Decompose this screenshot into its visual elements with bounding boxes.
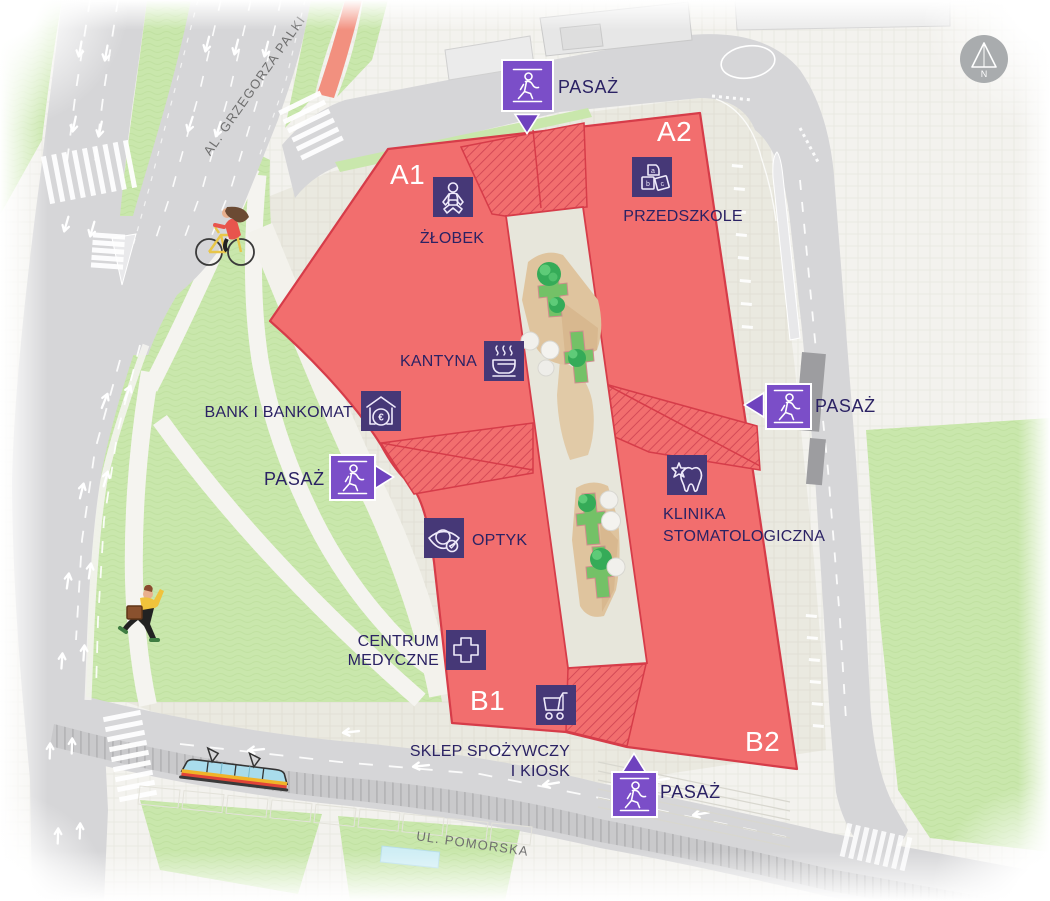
svg-text:CENTRUM: CENTRUM (358, 633, 439, 650)
svg-text:KANTYNA: KANTYNA (400, 353, 477, 370)
svg-text:SKLEP SPOŻYWCZY: SKLEP SPOŻYWCZY (410, 741, 570, 760)
svg-text:PASAŻ: PASAŻ (815, 396, 876, 416)
svg-text:PASAŻ: PASAŻ (558, 77, 619, 97)
svg-text:b: b (646, 181, 650, 188)
svg-text:OPTYK: OPTYK (472, 532, 527, 549)
svg-text:B2: B2 (745, 726, 780, 757)
svg-text:a: a (651, 168, 655, 175)
svg-text:ŻŁOBEK: ŻŁOBEK (420, 228, 484, 247)
svg-text:BANK I BANKOMAT: BANK I BANKOMAT (204, 404, 353, 421)
svg-text:MEDYCZNE: MEDYCZNE (348, 652, 439, 669)
svg-text:PRZEDSZKOLE: PRZEDSZKOLE (623, 208, 743, 225)
svg-text:STOMATOLOGICZNA: STOMATOLOGICZNA (663, 528, 825, 545)
svg-text:A1: A1 (390, 159, 425, 190)
svg-text:N: N (981, 69, 988, 79)
svg-text:€: € (378, 413, 384, 424)
svg-text:I KIOSK: I KIOSK (511, 763, 570, 780)
svg-text:KLINIKA: KLINIKA (663, 506, 726, 523)
svg-text:PASAŻ: PASAŻ (660, 782, 721, 802)
svg-text:PASAŻ: PASAŻ (264, 469, 325, 489)
svg-text:A2: A2 (657, 116, 692, 147)
svg-text:B1: B1 (470, 685, 505, 716)
